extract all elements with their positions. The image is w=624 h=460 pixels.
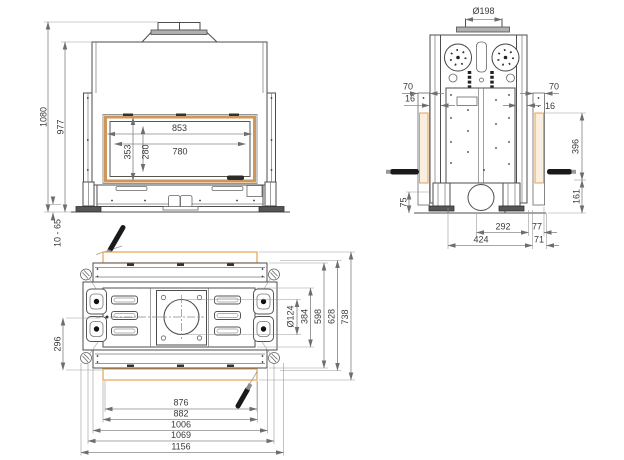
front-view: 853 780 353 280 1080 977 10 - 65	[39, 22, 291, 256]
latch	[254, 289, 274, 314]
dim-width-overall: 1156	[171, 442, 190, 452]
vent-slot	[112, 296, 138, 304]
glass-band-bottom	[103, 369, 257, 380]
dim-right-profile-width: 16	[545, 101, 555, 111]
dim-bottom-rear: 77	[532, 222, 542, 232]
side-panel	[446, 88, 515, 185]
vent-slot	[112, 312, 138, 320]
dim-depth-body: 628	[327, 309, 337, 324]
dim-depth-inner: 384	[300, 309, 310, 324]
dim-width-opening: 882	[173, 409, 188, 419]
dim-lift-height: 396	[571, 139, 581, 154]
counterweight-pulleys	[445, 42, 520, 89]
flue-collar	[142, 23, 217, 43]
dim-depth-rails: 598	[313, 309, 323, 324]
dim-opening-width-outer: 853	[172, 123, 187, 133]
glass-band-highlight	[420, 113, 429, 183]
fireplace-dimension-drawing: 853 780 353 280 1080 977 10 - 65	[0, 0, 624, 460]
dim-base-height: 161	[572, 189, 582, 204]
dim-foot-height: 75	[399, 197, 409, 207]
dim-bottom-total: 424	[473, 235, 488, 245]
dim-overall-height: 1080	[39, 107, 49, 127]
side-view: Ø198	[386, 6, 586, 249]
vent-slot	[215, 327, 241, 335]
dim-left-spacing: 296	[53, 336, 63, 351]
glass-band-highlight	[535, 113, 544, 183]
dim-bottom-front: 71	[534, 235, 544, 245]
dim-right-frame-width: 70	[549, 82, 559, 92]
dim-depth-overall: 738	[340, 309, 350, 324]
front-base	[71, 182, 290, 212]
dim-foot-adjust-range: 10 - 65	[53, 219, 63, 247]
door-latch-handle	[227, 176, 244, 181]
vent-slot	[215, 312, 241, 320]
pulley	[445, 44, 472, 71]
vent-slot	[215, 296, 241, 304]
dim-width-body: 1069	[171, 430, 191, 440]
dim-bottom-inner: 292	[495, 222, 510, 232]
latch	[87, 289, 107, 314]
dim-opening-height-outer: 353	[123, 144, 133, 159]
latch	[87, 317, 107, 342]
air-intake-outlet	[468, 185, 494, 211]
dim-width-rails: 1006	[171, 420, 191, 430]
dim-opening-width-inner: 780	[172, 147, 187, 157]
dim-body-height: 977	[56, 119, 66, 134]
plan-view: 296 Ø124 384 598 628 738	[53, 252, 356, 456]
side-flue: Ø198	[457, 6, 510, 32]
dim-left-frame-width: 70	[403, 82, 413, 92]
pulley	[492, 44, 519, 71]
rating-label-plate	[457, 97, 477, 106]
dim-left-profile-width: 16	[405, 94, 415, 104]
latch	[254, 317, 274, 342]
dim-width-glass: 876	[173, 398, 188, 408]
glass-band-top	[103, 252, 257, 263]
dim-outlet-diameter: Ø124	[286, 305, 296, 327]
dim-opening-height-inner: 280	[141, 144, 151, 159]
dim-flue-diameter: Ø198	[472, 6, 494, 16]
technical-drawing-page: 853 780 353 280 1080 977 10 - 65	[0, 0, 624, 460]
vent-slot	[112, 327, 138, 335]
